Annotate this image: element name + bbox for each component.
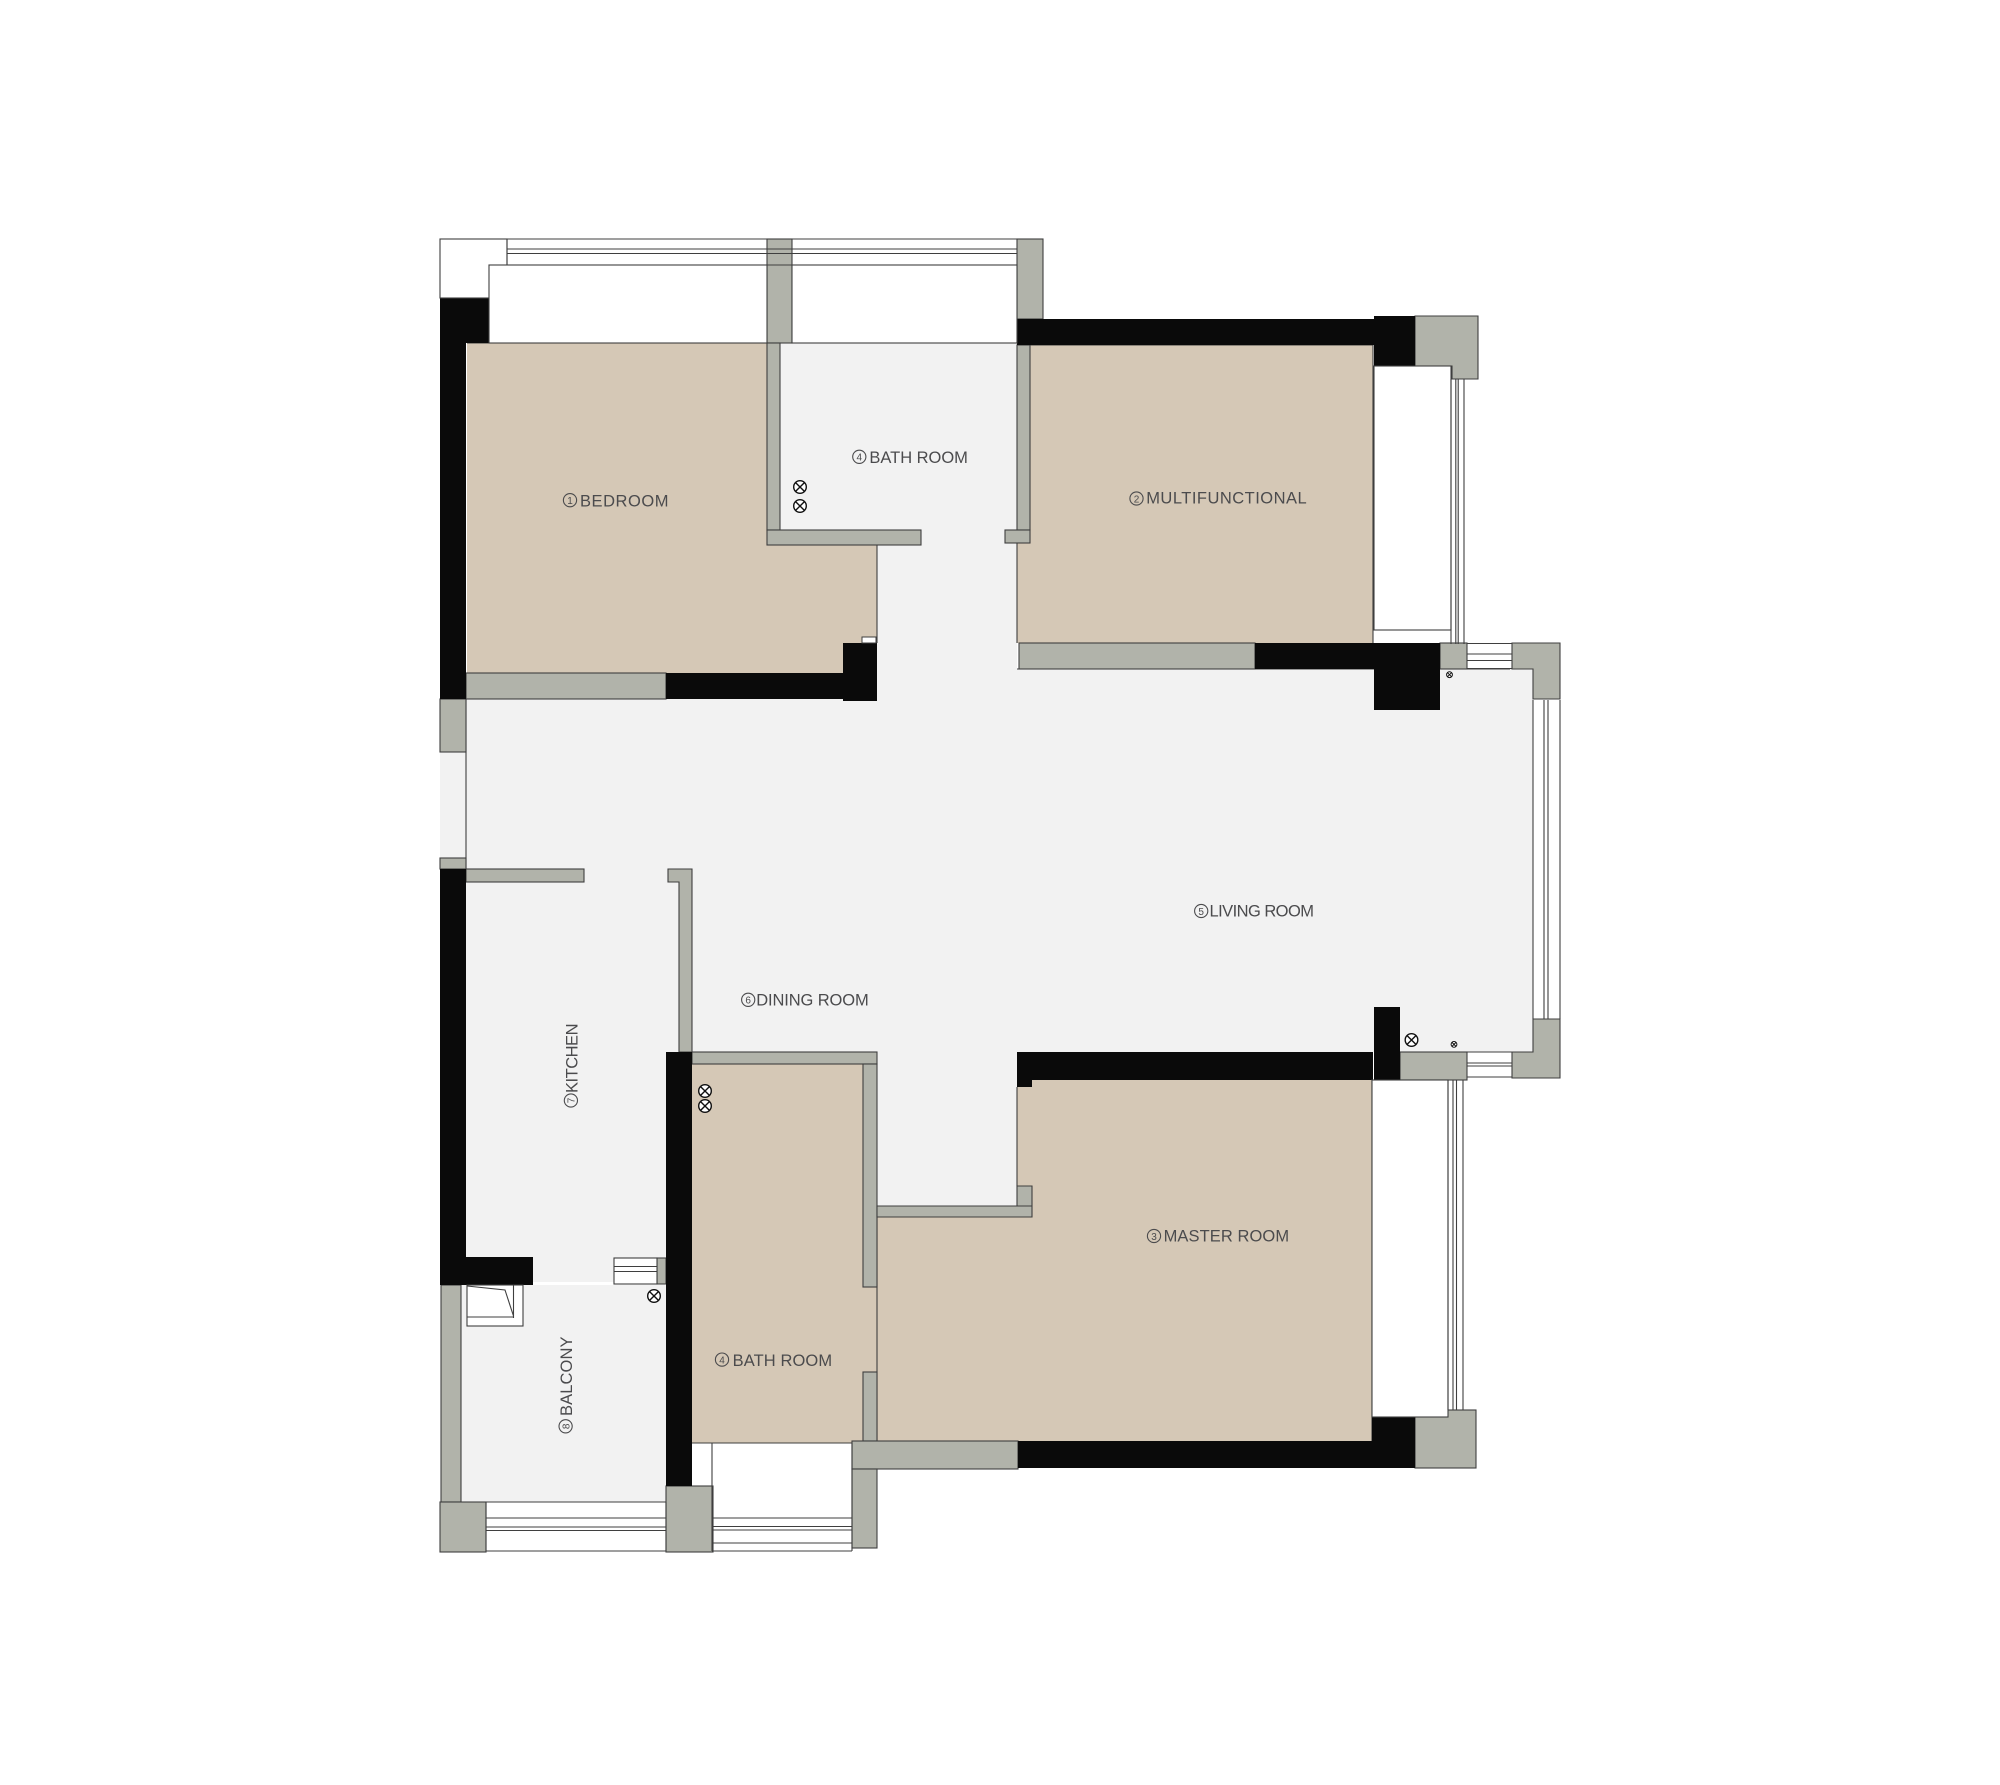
svg-text:6: 6	[745, 996, 751, 1007]
svg-text:5: 5	[1198, 907, 1204, 918]
svg-text:4: 4	[857, 453, 863, 464]
svg-text:DINING ROOM: DINING ROOM	[756, 991, 869, 1009]
svg-text:BATH ROOM: BATH ROOM	[869, 449, 968, 467]
svg-text:BALCONY: BALCONY	[558, 1336, 576, 1416]
svg-text:MULTIFUNCTIONAL: MULTIFUNCTIONAL	[1146, 489, 1307, 507]
svg-text:2: 2	[1134, 494, 1140, 505]
svg-text:1: 1	[567, 496, 573, 507]
svg-text:MASTER ROOM: MASTER ROOM	[1164, 1228, 1290, 1246]
svg-text:4: 4	[719, 1355, 725, 1366]
svg-text:3: 3	[1151, 1232, 1157, 1243]
svg-text:8: 8	[561, 1423, 572, 1429]
svg-text:BATH ROOM: BATH ROOM	[733, 1352, 833, 1370]
svg-text:KITCHEN: KITCHEN	[564, 1023, 582, 1093]
svg-text:LIVING ROOM: LIVING ROOM	[1210, 902, 1315, 920]
svg-text:7: 7	[567, 1097, 578, 1103]
svg-text:BEDROOM: BEDROOM	[580, 492, 669, 510]
